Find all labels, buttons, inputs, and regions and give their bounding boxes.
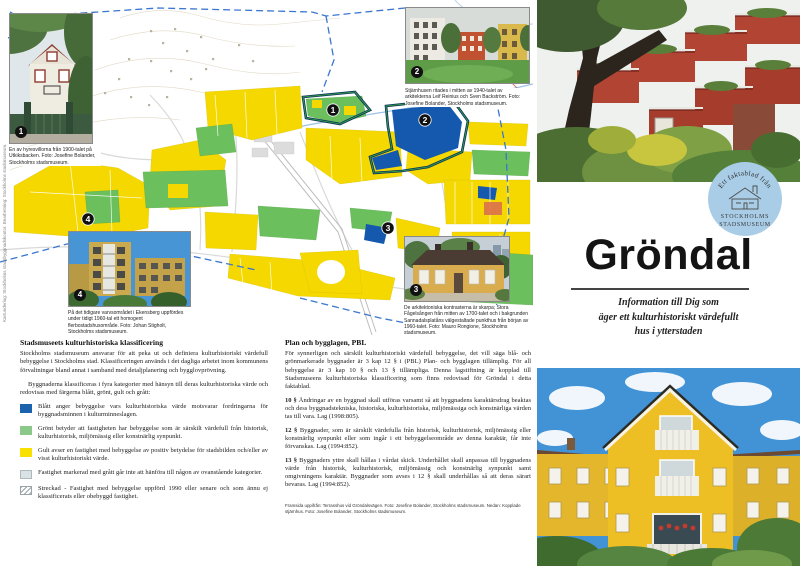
photo-number-badge: 1: [15, 126, 27, 138]
cover-title: Gröndal: [537, 234, 800, 277]
stamp-line2: STADSMUSEUM: [719, 222, 771, 228]
legend-text-green: Grönt betyder att fastigheten har bebygg…: [38, 425, 268, 441]
pbl-section-13: 13 § Byggnaders yttre skall hållas i vår…: [285, 457, 531, 489]
legend-item-gray: Fastighet markerad med grått går inte at…: [20, 469, 268, 479]
photo-number-badge: 2: [411, 66, 423, 78]
map-marker-2: 2: [419, 114, 431, 126]
stamp-line1: STOCKHOLMS: [721, 214, 770, 220]
legend-text-gray: Fastighet markerad med grått går inte at…: [38, 469, 268, 477]
legend-swatch-hatched: [20, 486, 32, 495]
map-marker-4: 4: [82, 213, 94, 225]
map-marker-1: 1: [327, 104, 339, 116]
map-marker-3: 3: [382, 222, 394, 234]
legend-swatch-green: [20, 426, 32, 435]
map-credit-vertical: Kartunderlag: Stockholms stadsbyggnadsko…: [2, 144, 7, 322]
pbl-section-12-lead: 12 §: [285, 427, 297, 434]
pbl-section-10-text: Ändringar av en byggnad skall utföras va…: [285, 397, 531, 420]
legend-text-yellow: Gult avser en fastighet med bebyggelse a…: [38, 447, 268, 463]
photo-hyresvilla: 1: [9, 13, 93, 144]
legend-item-hatched: Streckad - Fastighet med bebyggelse uppf…: [20, 485, 268, 501]
photo-caption-4: På det tidigare varvsområdet i Ekensberg…: [68, 310, 191, 335]
svg-text:3: 3: [386, 223, 391, 233]
legend-item-yellow: Gult avser en fastighet med bebyggelse a…: [20, 447, 268, 463]
photo-number-badge: 4: [74, 289, 86, 301]
classification-column: Stadsmuseets kulturhistoriska klassifice…: [20, 338, 268, 507]
legend-item-blue: Blått anger bebyggelse vars kulturhistor…: [20, 403, 268, 419]
pbl-section-10-lead: 10 §: [285, 397, 297, 404]
legend-swatch-gray: [20, 470, 32, 479]
svg-text:1: 1: [331, 105, 336, 115]
legend-item-green: Grönt betyder att fastigheten har bebygg…: [20, 425, 268, 441]
pbl-section-13-text: Byggnaders yttre skall hållas i vårdat s…: [285, 457, 531, 488]
photo-caption-1: En av hyresvillorna från 1900-talet på U…: [9, 147, 101, 166]
pbl-column: Plan och bygglagen, PBL För synnerligen …: [285, 338, 531, 516]
cover-subtitle: Information till Dig som äger ett kultur…: [552, 296, 785, 340]
photo-caption-3: De arkitektoniska kontrasterna är skarpa…: [404, 305, 530, 336]
legend-swatch-yellow: [20, 448, 32, 457]
classification-heading: Stadsmuseets kulturhistoriska klassifice…: [20, 338, 268, 347]
svg-text:2: 2: [423, 115, 428, 125]
photo-credits: Framsida uppifrån: Terrasshus vid Grönda…: [285, 503, 531, 516]
pbl-section-12: 12 § Byggnader, som är särskilt värdeful…: [285, 427, 531, 451]
stadsmuseum-stamp: Ett faktablad från STOCKHOLMS STADSMUSEU…: [707, 161, 783, 237]
cover-photo-yellow-building: [537, 368, 800, 566]
photo-stjarnhusen: 2: [405, 7, 530, 84]
pbl-section-13-lead: 13 §: [285, 457, 297, 464]
cover-subtitle-line1: Information till Dig som: [552, 296, 785, 311]
title-rule: [571, 288, 749, 290]
photo-stora-fagelsangen: 3: [404, 236, 510, 302]
pbl-section-12-text: Byggnader, som är särskilt värdefulla fr…: [285, 427, 531, 450]
cover-subtitle-line2: äger ett kulturhistoriskt värdefullt: [552, 311, 785, 326]
classification-intro: Stockholms stadsmuseum ansvarar för att …: [20, 350, 268, 374]
pbl-paragraph-1: För synnerligen och särskilt kulturhisto…: [285, 350, 531, 390]
legend-text-blue: Blått anger bebyggelse vars kulturhistor…: [38, 403, 268, 419]
classification-intro2: Byggnaderna klassificeras i fyra kategor…: [20, 381, 268, 397]
pbl-heading: Plan och bygglagen, PBL: [285, 338, 531, 347]
legend-text-hatched: Streckad - Fastighet med bebyggelse uppf…: [38, 485, 268, 501]
faktablad-sheet: 1 2 3 4 Kartunderlag: Stockholms stadsby…: [0, 0, 800, 566]
cover-subtitle-line3: hus i ytterstaden: [552, 325, 785, 340]
cover-photo-terraces: [537, 0, 800, 182]
svg-text:4: 4: [86, 214, 91, 224]
photo-ekensberg: 4: [68, 231, 191, 307]
pbl-section-10: 10 § Ändringar av en byggnad skall utför…: [285, 397, 531, 421]
photo-number-badge: 3: [410, 284, 422, 296]
legend-swatch-blue: [20, 404, 32, 413]
photo-caption-2: Stjärnhusen ritades i mitten av 1940-tal…: [405, 88, 530, 107]
